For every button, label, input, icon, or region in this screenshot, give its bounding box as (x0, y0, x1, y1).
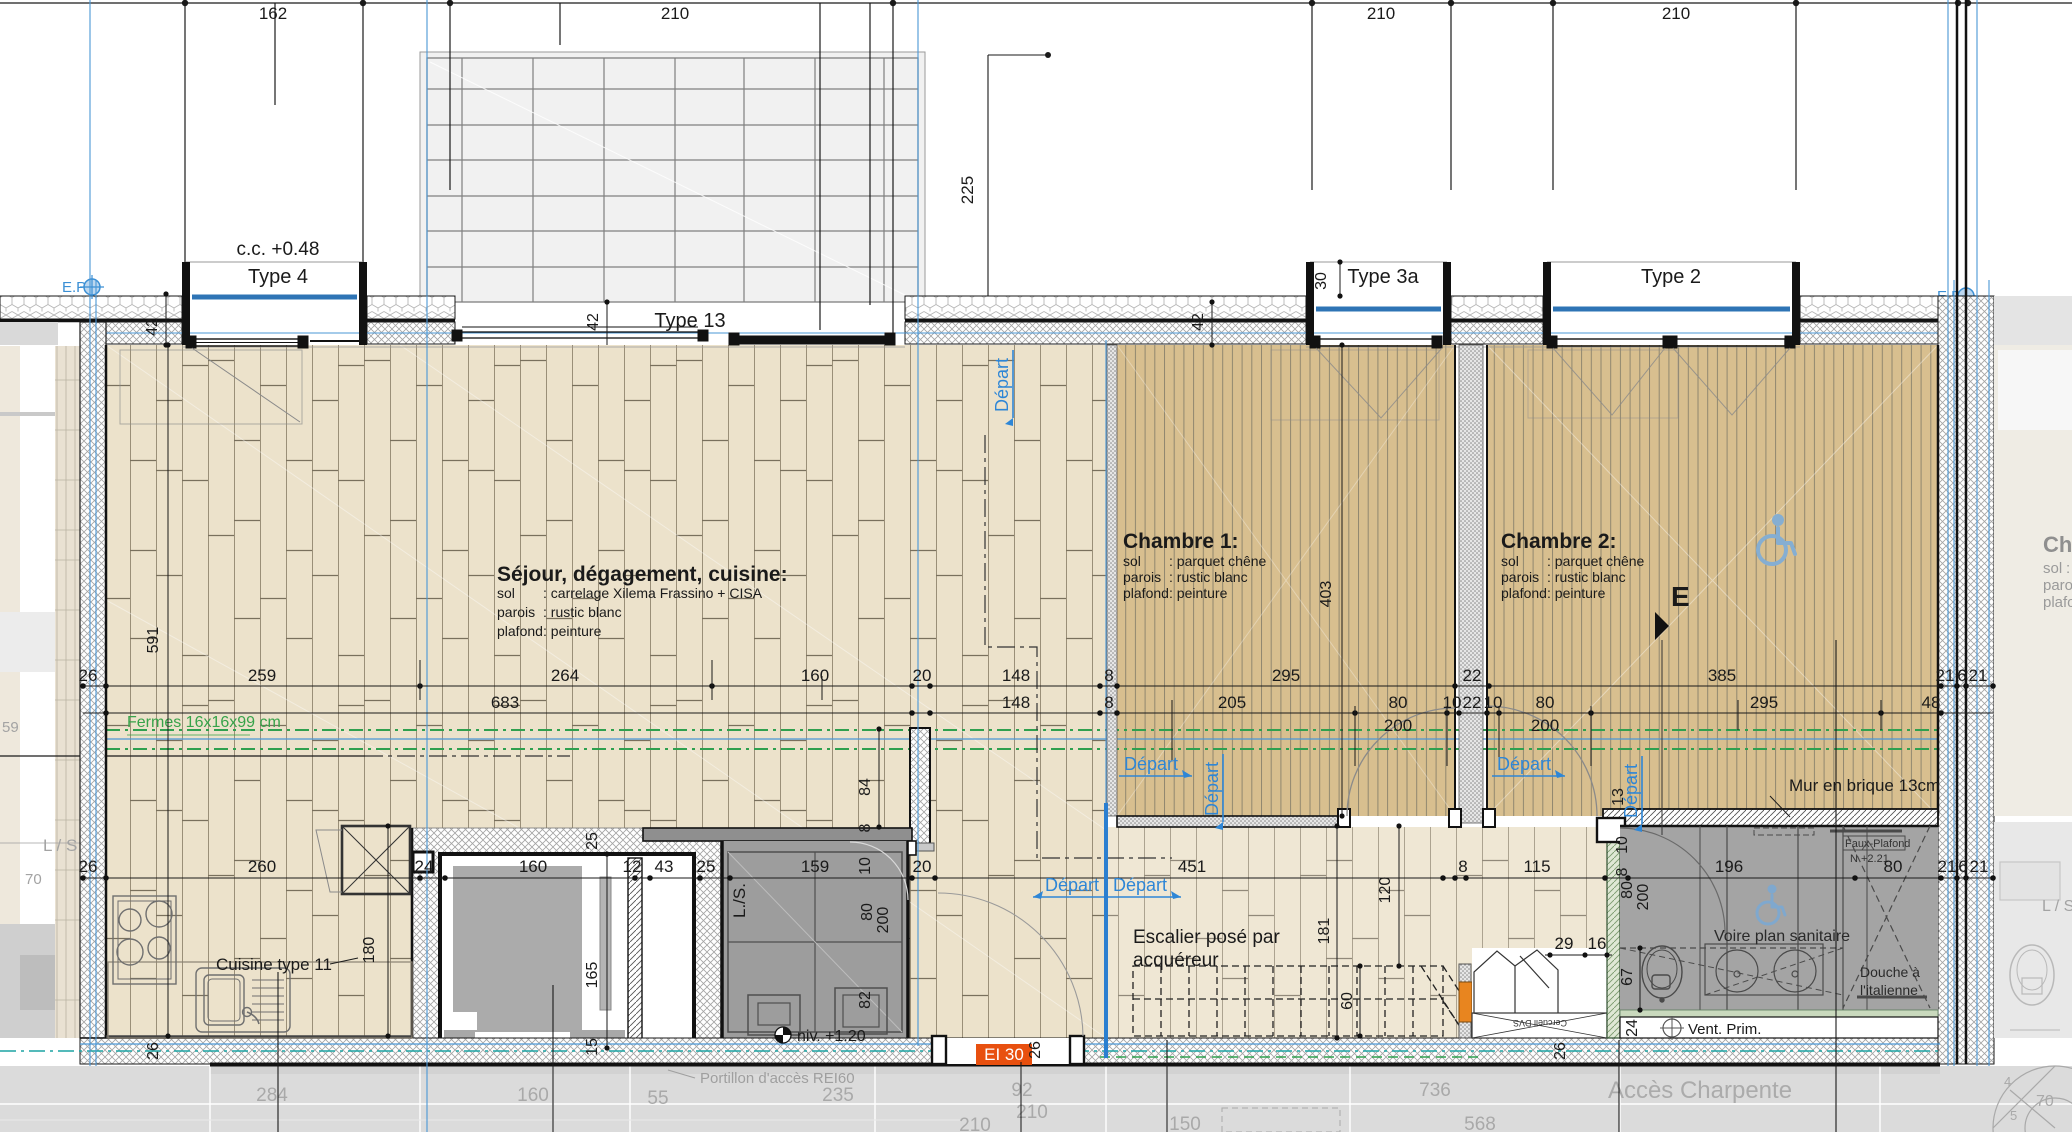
svg-text:235: 235 (822, 1085, 854, 1106)
svg-text:Chambre 2:: Chambre 2: (1501, 530, 1617, 553)
svg-text:sol: pa: sol: pa (2043, 560, 2072, 577)
svg-text:E: E (1671, 581, 1690, 612)
svg-text:15: 15 (584, 1038, 601, 1056)
svg-text:Départ: Départ (1202, 762, 1222, 816)
svg-text:Mur en brique 13cm: Mur en brique 13cm (1789, 776, 1940, 795)
svg-text:Vent. Prim.: Vent. Prim. (1688, 1021, 1761, 1038)
svg-text:21: 21 (1970, 857, 1989, 876)
svg-text:c.c. +0.48: c.c. +0.48 (237, 239, 320, 260)
svg-text:683: 683 (491, 693, 519, 712)
svg-text:niv. +1.20: niv. +1.20 (797, 1028, 866, 1045)
svg-text:10: 10 (1484, 693, 1503, 712)
svg-text:Départ: Départ (1124, 754, 1178, 774)
svg-text:8: 8 (1614, 867, 1631, 876)
svg-text:plafond: peinture: plafond: peinture (1501, 585, 1606, 601)
svg-text:plafond: peinture: plafond: peinture (497, 623, 602, 639)
svg-text:200: 200 (875, 907, 892, 934)
svg-text:Départ: Départ (1113, 875, 1167, 895)
svg-text:acquéreur: acquéreur (1133, 950, 1219, 971)
svg-text:Départ: Départ (1045, 875, 1099, 895)
svg-text:26: 26 (79, 857, 98, 876)
svg-text:Cercueil DVS: Cercueil DVS (1513, 1018, 1567, 1028)
svg-text:parois: rustic blanc: parois: rustic blanc (1123, 569, 1248, 585)
svg-text:22: 22 (1463, 666, 1482, 685)
svg-text:80: 80 (1536, 693, 1555, 712)
svg-text:205: 205 (1218, 693, 1246, 712)
svg-text:591: 591 (145, 627, 162, 654)
svg-text:5: 5 (2010, 1108, 2017, 1123)
svg-text:55: 55 (647, 1088, 668, 1109)
svg-text:25: 25 (697, 857, 716, 876)
svg-text:6: 6 (1957, 666, 1966, 685)
svg-text:10: 10 (1614, 836, 1631, 854)
svg-text:8: 8 (1458, 857, 1467, 876)
svg-text:26: 26 (145, 1042, 162, 1060)
svg-text:Type 3a: Type 3a (1347, 266, 1419, 288)
svg-text:Escalier posé par: Escalier posé par (1133, 927, 1280, 948)
svg-text:80: 80 (1389, 693, 1408, 712)
svg-text:48: 48 (1922, 693, 1941, 712)
svg-text:25: 25 (584, 832, 601, 850)
svg-text:451: 451 (1178, 857, 1206, 876)
svg-text:24: 24 (415, 857, 434, 876)
svg-text:120: 120 (1377, 877, 1394, 904)
svg-text:parois: rustic blanc: parois: rustic blanc (1501, 569, 1626, 585)
svg-text:8: 8 (857, 823, 874, 832)
svg-text:210: 210 (959, 1115, 991, 1132)
svg-text:EI 30: EI 30 (984, 1045, 1024, 1064)
svg-text:Voire plan sanitaire: Voire plan sanitaire (1714, 928, 1850, 945)
svg-text:259: 259 (248, 666, 276, 685)
svg-text:210: 210 (1367, 4, 1395, 23)
svg-text:80: 80 (859, 903, 876, 921)
svg-text:26: 26 (79, 666, 98, 685)
svg-text:L./S.: L./S. (730, 883, 749, 918)
svg-text:295: 295 (1272, 666, 1300, 685)
svg-text:200: 200 (1635, 884, 1652, 911)
svg-text:200: 200 (1531, 716, 1559, 735)
svg-text:8: 8 (1104, 693, 1113, 712)
svg-text:L / S: L / S (2042, 898, 2072, 915)
svg-text:24: 24 (1624, 1019, 1641, 1037)
svg-text:plafond: peinture: plafond: peinture (1123, 585, 1228, 601)
svg-text:60: 60 (1339, 992, 1356, 1010)
svg-text:6: 6 (1958, 857, 1967, 876)
svg-text:67: 67 (1619, 968, 1636, 986)
svg-text:70: 70 (25, 871, 42, 888)
svg-text:26: 26 (1027, 1041, 1044, 1059)
svg-text:Accès Charpente: Accès Charpente (1608, 1077, 1792, 1104)
svg-text:80: 80 (1619, 881, 1636, 899)
svg-text:148: 148 (1002, 666, 1030, 685)
svg-text:l'italienne: l'italienne (1860, 982, 1918, 998)
svg-text:Fermes 16x16x99 cm: Fermes 16x16x99 cm (127, 714, 281, 731)
svg-text:Portillon d'accès REI60: Portillon d'accès REI60 (700, 1070, 855, 1087)
svg-text:Départ: Départ (992, 358, 1012, 412)
svg-text:84: 84 (857, 778, 874, 796)
svg-text:210: 210 (661, 4, 689, 23)
svg-text:43: 43 (655, 857, 674, 876)
svg-text:150: 150 (1169, 1114, 1201, 1132)
svg-text:162: 162 (259, 4, 287, 23)
svg-text:21: 21 (1938, 857, 1957, 876)
svg-text:200: 200 (1384, 716, 1412, 735)
svg-text:180: 180 (361, 937, 378, 964)
svg-text:4: 4 (2004, 1074, 2011, 1089)
svg-text:30: 30 (1313, 272, 1330, 290)
svg-text:21: 21 (1936, 666, 1955, 685)
svg-text:20: 20 (913, 666, 932, 685)
svg-text:385: 385 (1708, 666, 1736, 685)
svg-text:Chambre 1:: Chambre 1: (1123, 530, 1239, 553)
svg-text:10: 10 (857, 857, 874, 875)
svg-text:70: 70 (2036, 1093, 2054, 1110)
svg-text:92: 92 (1011, 1080, 1032, 1101)
svg-text:225: 225 (958, 176, 977, 204)
svg-text:parois: parois (2043, 577, 2072, 594)
svg-text:210: 210 (1662, 4, 1690, 23)
svg-text:29: 29 (1555, 934, 1574, 953)
svg-text:160: 160 (519, 857, 547, 876)
svg-text:115: 115 (1523, 857, 1550, 876)
svg-text:260: 260 (248, 857, 276, 876)
svg-text:Départ: Départ (1497, 754, 1551, 774)
svg-text:Séjour, dégagement, cuisine:: Séjour, dégagement, cuisine: (497, 563, 788, 586)
svg-text:L / S: L / S (43, 836, 77, 855)
svg-text:42: 42 (144, 318, 161, 336)
svg-text:Type 4: Type 4 (248, 266, 308, 288)
svg-text:568: 568 (1464, 1114, 1496, 1132)
svg-text:295: 295 (1750, 693, 1778, 712)
svg-text:82: 82 (857, 991, 874, 1009)
svg-text:181: 181 (1316, 918, 1333, 945)
svg-text:Type 13: Type 13 (654, 310, 725, 332)
svg-text:Départ: Départ (1621, 764, 1641, 818)
svg-text:736: 736 (1419, 1080, 1451, 1101)
svg-text:Douche à: Douche à (1860, 964, 1920, 980)
svg-text:Faux-Plafond: Faux-Plafond (1845, 838, 1910, 850)
svg-text:196: 196 (1715, 857, 1743, 876)
svg-text:parois: rustic blanc: parois: rustic blanc (497, 604, 622, 620)
svg-text:10: 10 (1443, 693, 1462, 712)
svg-text:22: 22 (1463, 693, 1482, 712)
svg-text:80: 80 (1884, 857, 1903, 876)
svg-text:148: 148 (1002, 693, 1030, 712)
svg-text:21: 21 (1969, 666, 1988, 685)
svg-text:160: 160 (801, 666, 829, 685)
svg-text:42: 42 (585, 313, 602, 331)
svg-text:264: 264 (551, 666, 579, 685)
svg-text:165: 165 (584, 962, 601, 989)
svg-text:Chambr: Chambr (2043, 532, 2072, 557)
svg-text:plafond: plafond (2043, 594, 2072, 611)
svg-text:12: 12 (623, 857, 642, 876)
svg-text:160: 160 (517, 1085, 549, 1106)
svg-text:403: 403 (1318, 581, 1335, 608)
svg-text:26: 26 (1552, 1042, 1569, 1060)
svg-text:16: 16 (1588, 934, 1607, 953)
svg-text:20: 20 (913, 857, 932, 876)
svg-text:Type 2: Type 2 (1641, 266, 1701, 288)
svg-text:159: 159 (801, 857, 829, 876)
svg-text:Cuisine type 11: Cuisine type 11 (216, 955, 332, 974)
svg-text:284: 284 (256, 1085, 288, 1106)
svg-text:42: 42 (1190, 313, 1207, 331)
svg-text:59: 59 (2, 719, 19, 736)
svg-text:8: 8 (1104, 666, 1113, 685)
